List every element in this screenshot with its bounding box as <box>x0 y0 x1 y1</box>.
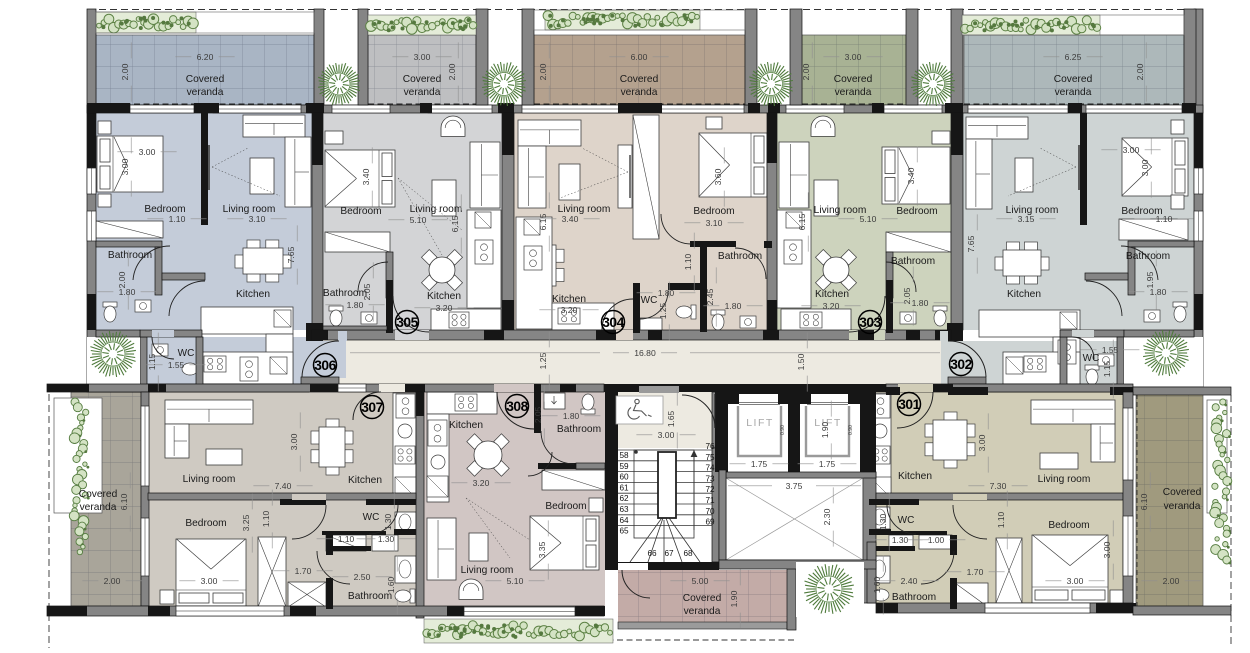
svg-text:5.00: 5.00 <box>692 576 709 586</box>
svg-text:Living room: Living room <box>410 204 463 215</box>
svg-text:3.20: 3.20 <box>561 305 578 315</box>
svg-text:1.30: 1.30 <box>892 535 909 545</box>
svg-text:1.75: 1.75 <box>751 459 768 469</box>
svg-text:1.55: 1.55 <box>168 360 185 370</box>
svg-text:308: 308 <box>506 399 528 414</box>
svg-text:Covered: Covered <box>1054 74 1093 85</box>
svg-text:3.00: 3.00 <box>201 576 218 586</box>
svg-text:3.15: 3.15 <box>1018 214 1035 224</box>
svg-text:Living room: Living room <box>183 474 236 485</box>
svg-text:0.90: 0.90 <box>848 425 854 435</box>
svg-text:Bathroom: Bathroom <box>557 424 601 435</box>
svg-text:60: 60 <box>619 473 629 482</box>
svg-text:68: 68 <box>683 549 693 558</box>
svg-text:Covered: Covered <box>620 74 659 85</box>
svg-text:Living room: Living room <box>1038 474 1091 485</box>
svg-text:Living room: Living room <box>814 205 867 216</box>
svg-text:3.35: 3.35 <box>537 541 547 558</box>
svg-text:70: 70 <box>705 507 715 516</box>
svg-text:2.45: 2.45 <box>705 288 715 305</box>
svg-text:1.30: 1.30 <box>383 514 393 531</box>
svg-text:1.80: 1.80 <box>1150 287 1167 297</box>
svg-text:5.10: 5.10 <box>507 576 524 586</box>
svg-text:3.00: 3.00 <box>1123 145 1140 155</box>
svg-text:2.50: 2.50 <box>354 572 371 582</box>
svg-text:Bedroom: Bedroom <box>340 206 381 217</box>
svg-text:WC: WC <box>641 295 658 306</box>
svg-text:3.40: 3.40 <box>361 168 371 185</box>
svg-text:5.10: 5.10 <box>860 214 877 224</box>
svg-text:3.75: 3.75 <box>786 481 803 491</box>
svg-text:6.15: 6.15 <box>450 215 460 232</box>
svg-text:3.20: 3.20 <box>473 478 490 488</box>
svg-text:6.15: 6.15 <box>538 213 548 230</box>
svg-text:2.05: 2.05 <box>533 407 543 424</box>
svg-text:Bedroom: Bedroom <box>545 501 586 512</box>
svg-text:0.90: 0.90 <box>780 425 786 435</box>
svg-text:3.40: 3.40 <box>562 214 579 224</box>
svg-text:1.30: 1.30 <box>378 534 395 544</box>
svg-text:1.80: 1.80 <box>912 298 929 308</box>
svg-text:63: 63 <box>619 505 629 514</box>
svg-text:1.60: 1.60 <box>386 577 396 594</box>
svg-text:1.55: 1.55 <box>1102 345 1119 355</box>
svg-text:Kitchen: Kitchen <box>427 291 461 302</box>
svg-text:1.65: 1.65 <box>666 411 676 428</box>
svg-text:1.80: 1.80 <box>347 300 364 310</box>
svg-text:3.00: 3.00 <box>1102 541 1112 558</box>
svg-text:2.05: 2.05 <box>902 287 912 304</box>
svg-text:1.15: 1.15 <box>147 354 157 371</box>
svg-text:LIFT: LIFT <box>746 417 774 429</box>
svg-text:304: 304 <box>602 315 624 330</box>
svg-text:1.00: 1.00 <box>928 535 945 545</box>
svg-text:66: 66 <box>647 549 657 558</box>
svg-text:Covered: Covered <box>1163 487 1202 498</box>
svg-text:3.00: 3.00 <box>1140 159 1150 176</box>
svg-text:1.60: 1.60 <box>872 577 882 594</box>
svg-text:302: 302 <box>950 357 972 372</box>
svg-text:72: 72 <box>705 485 715 494</box>
svg-text:veranda: veranda <box>621 87 658 98</box>
svg-text:2.00: 2.00 <box>117 271 127 288</box>
svg-text:Kitchen: Kitchen <box>898 471 932 482</box>
svg-text:2.40: 2.40 <box>901 576 918 586</box>
svg-text:6.10: 6.10 <box>1139 493 1149 510</box>
svg-text:Covered: Covered <box>186 74 225 85</box>
svg-text:3.10: 3.10 <box>706 218 723 228</box>
svg-text:1.80: 1.80 <box>563 411 580 421</box>
svg-text:69: 69 <box>705 518 715 527</box>
svg-text:76: 76 <box>705 442 715 451</box>
svg-text:307: 307 <box>361 400 383 415</box>
svg-text:veranda: veranda <box>187 87 224 98</box>
svg-text:1.15: 1.15 <box>1102 361 1112 378</box>
svg-text:1.10: 1.10 <box>261 511 271 528</box>
svg-text:Covered: Covered <box>79 489 118 500</box>
svg-text:Living room: Living room <box>461 565 514 576</box>
svg-text:1.80: 1.80 <box>119 287 136 297</box>
svg-text:veranda: veranda <box>80 502 117 513</box>
svg-text:3.00: 3.00 <box>289 433 299 450</box>
svg-text:301: 301 <box>898 397 920 412</box>
svg-text:64: 64 <box>619 516 629 525</box>
svg-text:6.00: 6.00 <box>631 52 648 62</box>
svg-text:Bedroom: Bedroom <box>1048 520 1089 531</box>
svg-text:6.20: 6.20 <box>197 52 214 62</box>
svg-text:1.80: 1.80 <box>725 301 742 311</box>
svg-text:1.70: 1.70 <box>967 567 984 577</box>
svg-text:Bathroom: Bathroom <box>718 251 762 262</box>
svg-text:1.90: 1.90 <box>729 590 739 607</box>
svg-text:Bedroom: Bedroom <box>896 206 937 217</box>
svg-text:Covered: Covered <box>834 74 873 85</box>
svg-text:74: 74 <box>705 464 715 473</box>
svg-text:1.70: 1.70 <box>295 566 312 576</box>
svg-text:3.20: 3.20 <box>823 301 840 311</box>
svg-text:303: 303 <box>859 315 881 330</box>
svg-text:1.10: 1.10 <box>338 534 355 544</box>
svg-text:veranda: veranda <box>835 87 872 98</box>
svg-text:2.00: 2.00 <box>538 63 548 80</box>
svg-text:3.00: 3.00 <box>845 52 862 62</box>
svg-text:WC: WC <box>898 515 915 526</box>
svg-text:Kitchen: Kitchen <box>552 294 586 305</box>
svg-text:6.10: 6.10 <box>119 493 129 510</box>
svg-text:2.00: 2.00 <box>1163 576 1180 586</box>
svg-text:1.75: 1.75 <box>819 459 836 469</box>
svg-text:2.30: 2.30 <box>822 508 832 525</box>
svg-text:WC: WC <box>363 512 380 523</box>
svg-text:1.80: 1.80 <box>658 288 675 298</box>
svg-text:306: 306 <box>314 358 336 373</box>
svg-text:3.40: 3.40 <box>906 167 916 184</box>
svg-text:65: 65 <box>619 527 629 536</box>
svg-text:Kitchen: Kitchen <box>348 475 382 486</box>
svg-text:Kitchen: Kitchen <box>815 289 849 300</box>
svg-text:2.05: 2.05 <box>362 283 372 300</box>
svg-text:73: 73 <box>705 474 715 483</box>
svg-text:67: 67 <box>664 549 674 558</box>
svg-text:Bathroom: Bathroom <box>108 250 152 261</box>
svg-text:Bedroom: Bedroom <box>185 518 226 529</box>
svg-text:3.00: 3.00 <box>1067 576 1084 586</box>
svg-text:59: 59 <box>619 462 629 471</box>
svg-text:7.30: 7.30 <box>990 481 1007 491</box>
svg-text:veranda: veranda <box>404 87 441 98</box>
svg-text:Kitchen: Kitchen <box>236 289 270 300</box>
svg-text:2.00: 2.00 <box>801 63 811 80</box>
svg-text:Kitchen: Kitchen <box>1007 289 1041 300</box>
svg-text:3.00: 3.00 <box>139 147 156 157</box>
svg-text:Bedroom: Bedroom <box>693 206 734 217</box>
svg-text:6.15: 6.15 <box>797 213 807 230</box>
svg-text:6.25: 6.25 <box>1065 52 1082 62</box>
svg-text:1.10: 1.10 <box>683 254 693 271</box>
svg-text:1.90: 1.90 <box>820 422 830 439</box>
svg-text:62: 62 <box>619 494 629 503</box>
svg-text:1.30: 1.30 <box>878 514 888 531</box>
svg-text:2.00: 2.00 <box>104 576 121 586</box>
svg-text:1.10: 1.10 <box>996 512 1006 529</box>
svg-text:2.00: 2.00 <box>120 63 130 80</box>
svg-text:16.80: 16.80 <box>634 348 656 358</box>
svg-text:1.25: 1.25 <box>538 352 548 369</box>
svg-text:Covered: Covered <box>683 593 722 604</box>
svg-text:Bathroom: Bathroom <box>892 592 936 603</box>
svg-text:2.00: 2.00 <box>447 63 457 80</box>
svg-text:7.65: 7.65 <box>966 235 976 252</box>
svg-text:Bathroom: Bathroom <box>891 256 935 267</box>
svg-text:Bathroom: Bathroom <box>1126 251 1170 262</box>
svg-text:1.95: 1.95 <box>1145 271 1155 288</box>
svg-text:61: 61 <box>619 483 629 492</box>
svg-text:Bathroom: Bathroom <box>323 288 367 299</box>
svg-text:3.00: 3.00 <box>658 430 675 440</box>
svg-text:veranda: veranda <box>684 606 721 617</box>
svg-text:7.65: 7.65 <box>286 246 296 263</box>
svg-text:1.10: 1.10 <box>1156 214 1173 224</box>
svg-text:1.25: 1.25 <box>658 303 668 320</box>
svg-text:WC: WC <box>1083 353 1100 364</box>
svg-text:3.10: 3.10 <box>249 214 266 224</box>
svg-text:5.10: 5.10 <box>410 215 427 225</box>
svg-text:3.25: 3.25 <box>241 514 251 531</box>
svg-text:3.20: 3.20 <box>436 303 453 313</box>
svg-text:75: 75 <box>705 453 715 462</box>
svg-text:1.50: 1.50 <box>796 353 806 370</box>
svg-text:3.00: 3.00 <box>414 52 431 62</box>
svg-text:1.10: 1.10 <box>169 214 186 224</box>
svg-text:Kitchen: Kitchen <box>449 420 483 431</box>
svg-text:3.60: 3.60 <box>713 168 723 185</box>
svg-text:veranda: veranda <box>1055 87 1092 98</box>
svg-text:2.00: 2.00 <box>1135 63 1145 80</box>
svg-text:veranda: veranda <box>1164 501 1201 512</box>
svg-text:71: 71 <box>705 496 715 505</box>
svg-text:3.00: 3.00 <box>120 158 130 175</box>
svg-text:WC: WC <box>178 348 195 359</box>
svg-text:Covered: Covered <box>403 74 442 85</box>
svg-text:7.40: 7.40 <box>275 481 292 491</box>
svg-text:58: 58 <box>619 451 629 460</box>
svg-text:305: 305 <box>396 315 418 330</box>
svg-text:3.00: 3.00 <box>977 434 987 451</box>
